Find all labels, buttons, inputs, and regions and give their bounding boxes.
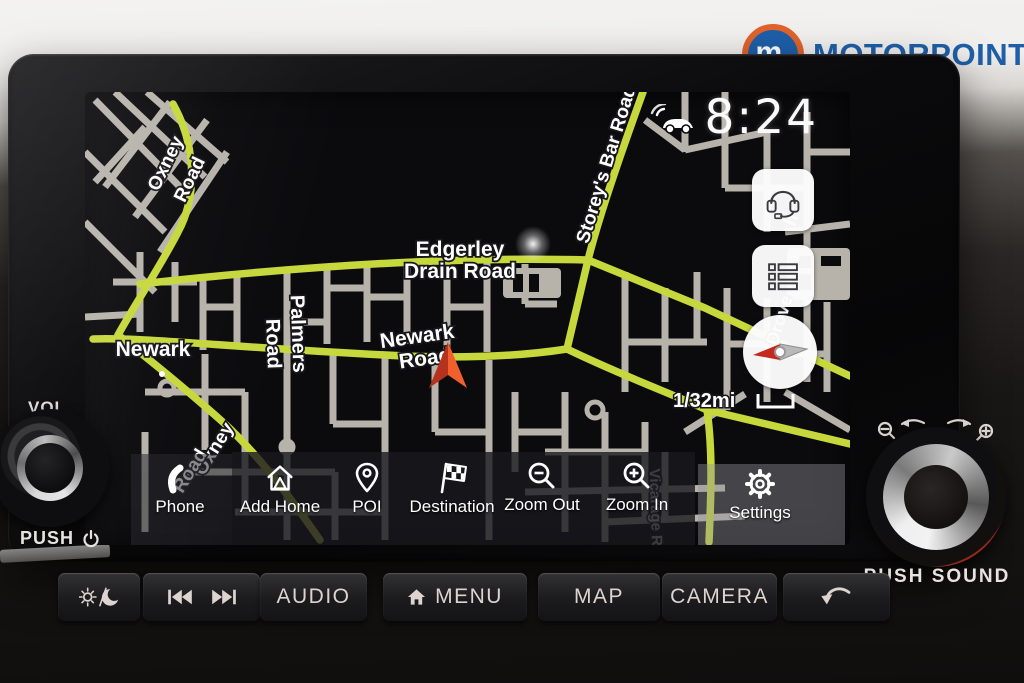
back-button[interactable] bbox=[783, 573, 890, 621]
clock: 8:24 bbox=[704, 92, 818, 145]
map-dot bbox=[159, 371, 165, 377]
map-scale: 1/32mi bbox=[673, 390, 793, 412]
compass-button[interactable] bbox=[743, 315, 817, 389]
push-power-label: PUSH bbox=[20, 528, 101, 549]
back-arrow-icon bbox=[820, 585, 854, 609]
toolbar-item-phone[interactable]: Phone bbox=[132, 462, 228, 517]
toolbar-item-label: POI bbox=[319, 497, 415, 517]
toolbar-item-label: Settings bbox=[712, 503, 808, 523]
label-palmers-1: Palmers bbox=[286, 295, 311, 374]
track-buttons[interactable] bbox=[143, 573, 260, 621]
compass-icon bbox=[743, 315, 817, 389]
connected-car-icon bbox=[648, 104, 694, 136]
day-night-button[interactable] bbox=[58, 573, 140, 621]
label-newark-town: Newark bbox=[116, 338, 191, 361]
nav-screen: Oxney Road Storey's Bar Road Edgerley Dr… bbox=[85, 92, 850, 545]
add-home-icon bbox=[262, 460, 298, 496]
previous-track-icon bbox=[166, 587, 194, 607]
menu-button-label: MENU bbox=[435, 585, 503, 609]
scale-label: 1/32mi bbox=[673, 390, 735, 412]
label-palmers-2: Road bbox=[261, 318, 285, 369]
toolbar-item-label: Zoom In bbox=[589, 495, 685, 515]
audio-button[interactable]: AUDIO bbox=[260, 573, 367, 621]
label-storeys-bar: Storey's Bar Road bbox=[573, 92, 641, 246]
list-icon bbox=[761, 254, 805, 298]
home-icon bbox=[407, 588, 426, 606]
destination-flag-icon bbox=[434, 460, 470, 496]
toolbar-item-label: Destination bbox=[404, 497, 500, 517]
toolbar-item-label: Add Home bbox=[232, 497, 328, 517]
toolbar-item-settings[interactable]: Settings bbox=[712, 466, 808, 523]
menu-button[interactable]: MENU bbox=[383, 573, 527, 621]
zoom-in-icon bbox=[620, 460, 654, 494]
audio-button-label: AUDIO bbox=[276, 585, 350, 609]
camera-button[interactable]: CAMERA bbox=[662, 573, 777, 621]
toolbar-item-zoom-out[interactable]: Zoom Out bbox=[494, 460, 590, 515]
photo-stage: m. MOTORPOINT bbox=[0, 0, 1024, 683]
poi-pin-icon bbox=[350, 460, 384, 496]
headset-icon bbox=[761, 178, 805, 222]
map-button[interactable]: MAP bbox=[538, 573, 660, 621]
map-button-label: MAP bbox=[574, 585, 624, 609]
toolbar-item-label: Phone bbox=[132, 497, 228, 517]
knob-cap bbox=[25, 443, 75, 493]
voice-assist-button[interactable] bbox=[752, 169, 814, 231]
label-edgerley-1: Edgerley bbox=[416, 238, 505, 261]
toolbar-item-poi[interactable]: POI bbox=[319, 460, 415, 517]
route-list-button[interactable] bbox=[752, 245, 814, 307]
toolbar-item-add-home[interactable]: Add Home bbox=[232, 460, 328, 517]
toolbar-item-zoom-in[interactable]: Zoom In bbox=[589, 460, 685, 515]
toolbar-item-label: Zoom Out bbox=[494, 495, 590, 515]
phone-icon bbox=[163, 462, 197, 496]
day-night-icon bbox=[79, 584, 119, 610]
sound-zoom-knob[interactable] bbox=[866, 427, 1006, 567]
next-track-icon bbox=[210, 587, 238, 607]
knob-cap bbox=[904, 465, 968, 529]
label-edgerley-2: Drain Road bbox=[404, 260, 516, 283]
zoom-out-icon bbox=[525, 460, 559, 494]
settings-gear-icon bbox=[742, 466, 778, 502]
toolbar-item-destination[interactable]: Destination bbox=[404, 460, 500, 517]
power-icon bbox=[81, 529, 101, 549]
camera-button-label: CAMERA bbox=[670, 585, 769, 609]
glass-reflection bbox=[515, 226, 551, 262]
